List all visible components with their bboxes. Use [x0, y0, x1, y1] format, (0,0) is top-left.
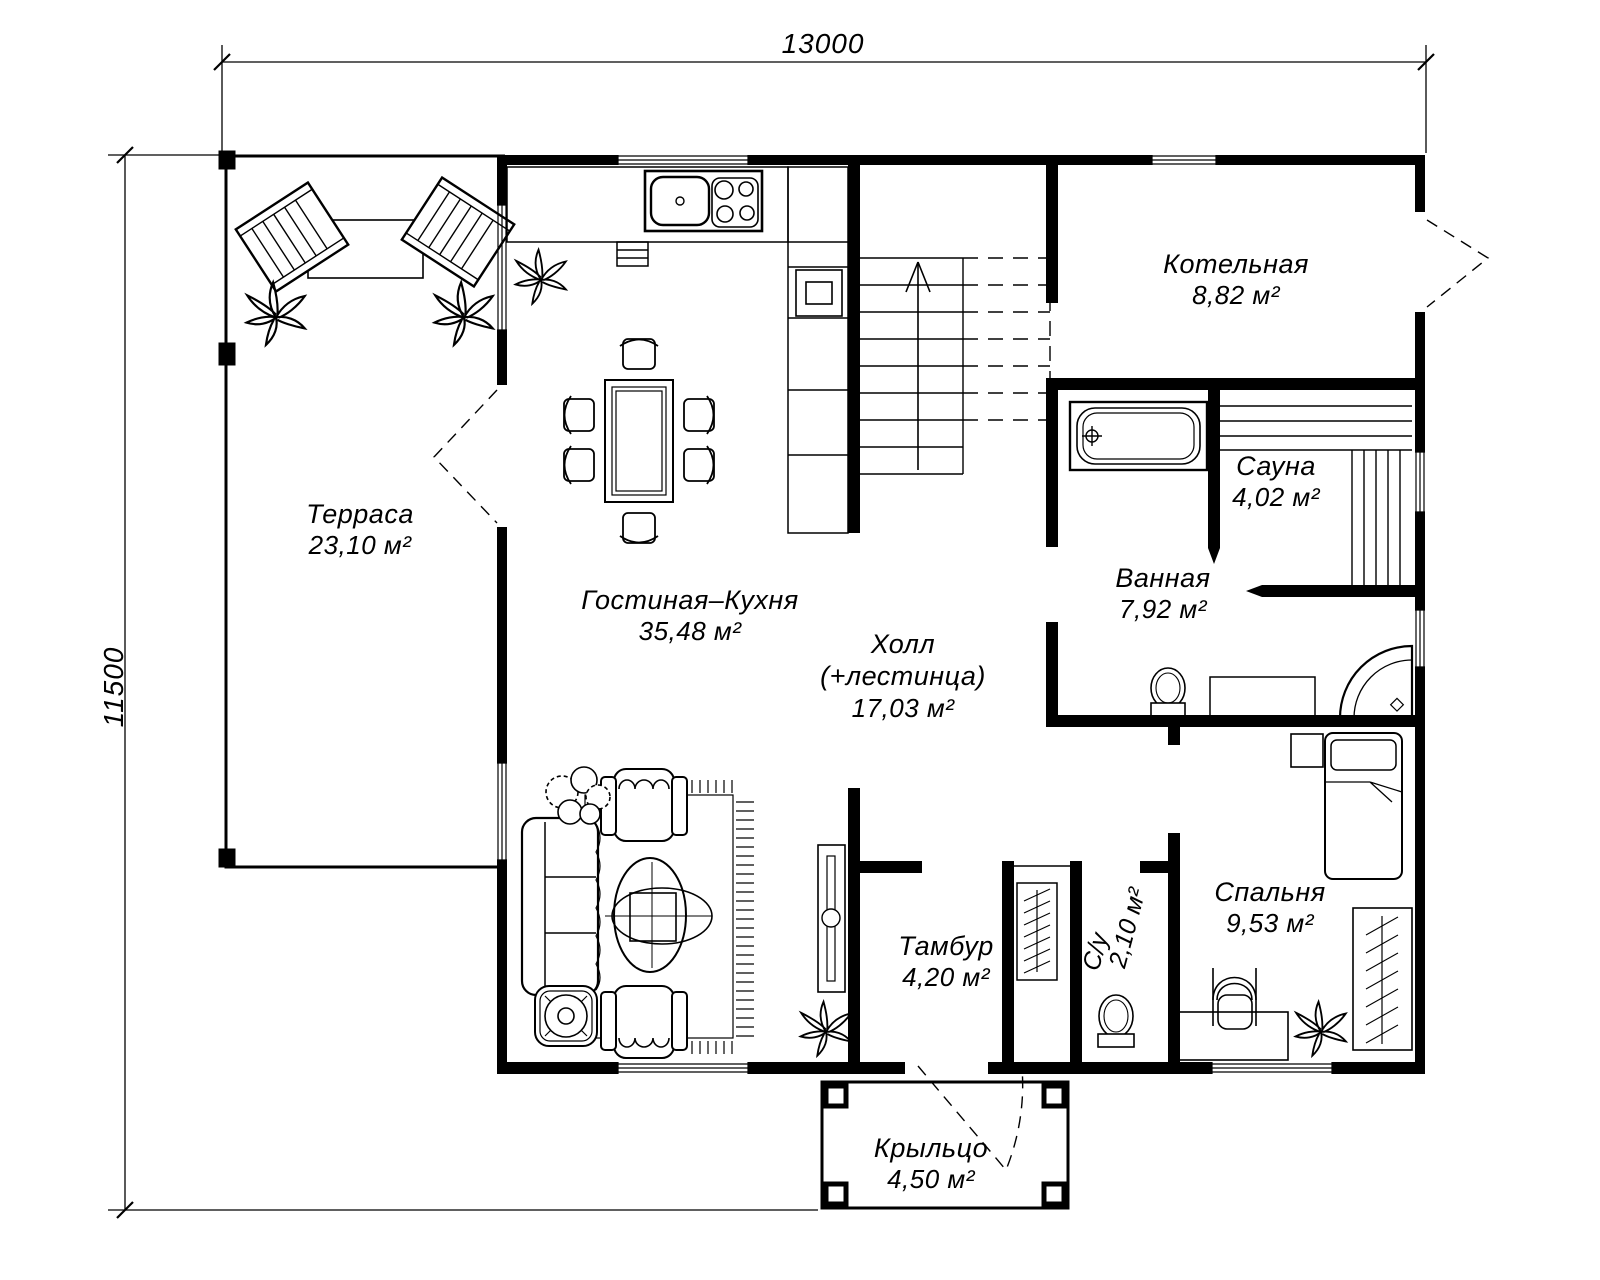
room-label-vestibule: Тамбур 4,20 м²: [898, 930, 994, 994]
room-label-bedroom: Спальня 9,53 м²: [1214, 876, 1325, 940]
oven: [796, 270, 842, 316]
terrace-door-swing: [434, 390, 497, 523]
console-mirror: [818, 845, 845, 992]
toilet-bathroom: [1151, 668, 1185, 716]
room-label-sauna: Сауна 4,02 м²: [1232, 450, 1320, 514]
plant-icon: [434, 282, 492, 345]
sofa: [522, 818, 600, 995]
floor-plant-circles: [546, 767, 610, 824]
dining-chair: [564, 396, 594, 434]
dining-chair: [684, 396, 714, 434]
room-label-boiler: Котельная 8,82 м²: [1163, 248, 1309, 312]
dim-label-width: 13000: [782, 28, 865, 60]
dimension-top: [214, 45, 1434, 153]
stairs: [860, 258, 1050, 474]
room-label-bathroom: Ванная 7,92 м²: [1115, 562, 1210, 626]
room-label-terrace: Терраса 23,10 м²: [306, 498, 414, 562]
room-label-living-kitchen: Гостиная–Кухня 35,48 м²: [581, 584, 798, 648]
dining-table: [605, 380, 673, 502]
dimension-left: [108, 147, 818, 1218]
hall-wardrobe: [1017, 883, 1057, 980]
floor-plan: 13000 11500 Терраса 23,10 м² Гостиная–Ку…: [0, 0, 1600, 1280]
armchair-top: [601, 769, 687, 841]
bathtub: [1070, 402, 1207, 470]
room-label-hall: Холл (+лестинца) 17,03 м²: [820, 628, 986, 724]
boiler-door-swing: [1427, 220, 1488, 307]
plant-icon: [801, 1002, 851, 1056]
desk-chair: [1213, 968, 1256, 1029]
bedroom-wardrobe: [1353, 908, 1412, 1050]
plan-linework: [0, 0, 1600, 1280]
armchair-bottom: [601, 986, 687, 1058]
dining-chair: [564, 446, 594, 484]
kitchen-sink: [645, 171, 762, 231]
nightstand: [1291, 734, 1323, 767]
room-label-porch: Крыльцо 4,50 м²: [874, 1132, 988, 1196]
dining-chair: [620, 339, 658, 369]
door-jamb: [1246, 585, 1262, 597]
bed: [1325, 733, 1402, 879]
plant-icon: [516, 250, 566, 304]
pouf: [535, 986, 597, 1046]
plant-icon: [246, 282, 304, 345]
dim-label-height: 11500: [98, 647, 130, 728]
dining-chair: [684, 446, 714, 484]
vanity-counter: [1210, 677, 1315, 717]
plant-icon: [1296, 1002, 1346, 1056]
dining-chair: [620, 513, 658, 543]
toilet-wc: [1098, 995, 1134, 1047]
rug-fringe: [692, 780, 754, 1054]
coffee-table: [605, 858, 712, 972]
corner-shower: [1340, 646, 1412, 718]
desk: [1174, 1012, 1288, 1060]
